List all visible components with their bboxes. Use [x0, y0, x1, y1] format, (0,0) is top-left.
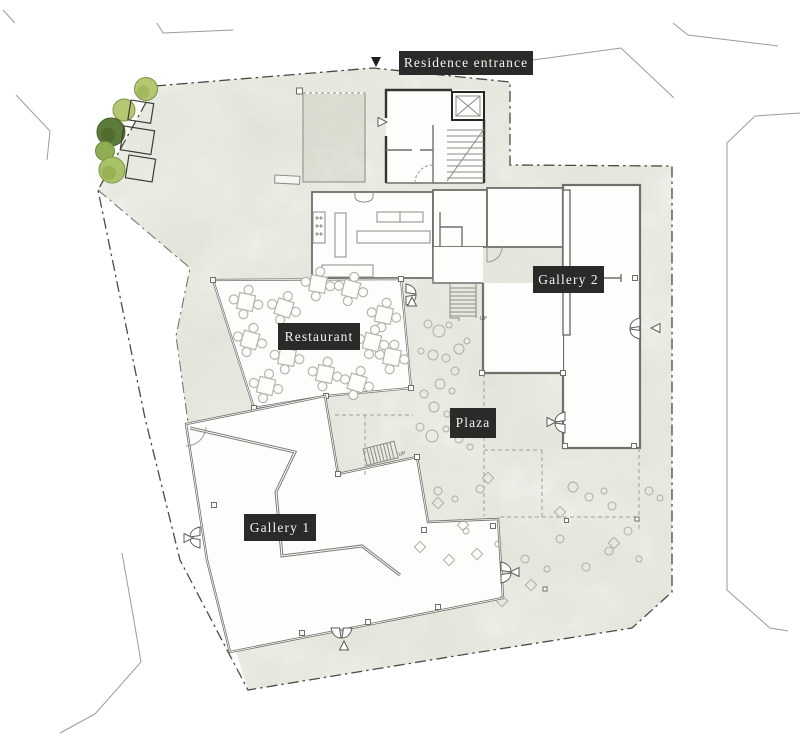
elevator-icon — [452, 92, 484, 120]
site-plan: UP UP R — [0, 0, 800, 736]
label-residence-entrance: Residence entrance — [399, 51, 533, 75]
stair-up-label: UP — [480, 316, 488, 322]
label-plaza: Plaza — [450, 408, 496, 438]
label-restaurant: Restaurant — [278, 323, 360, 350]
site-plan-drawing: UP UP — [0, 0, 800, 736]
label-gallery-2: Gallery 2 — [533, 266, 604, 293]
entry-ramp — [303, 93, 365, 182]
label-gallery-1: Gallery 1 — [244, 514, 316, 541]
entrance-pointer-icon — [371, 57, 381, 67]
residence-entrance-building — [297, 88, 485, 183]
